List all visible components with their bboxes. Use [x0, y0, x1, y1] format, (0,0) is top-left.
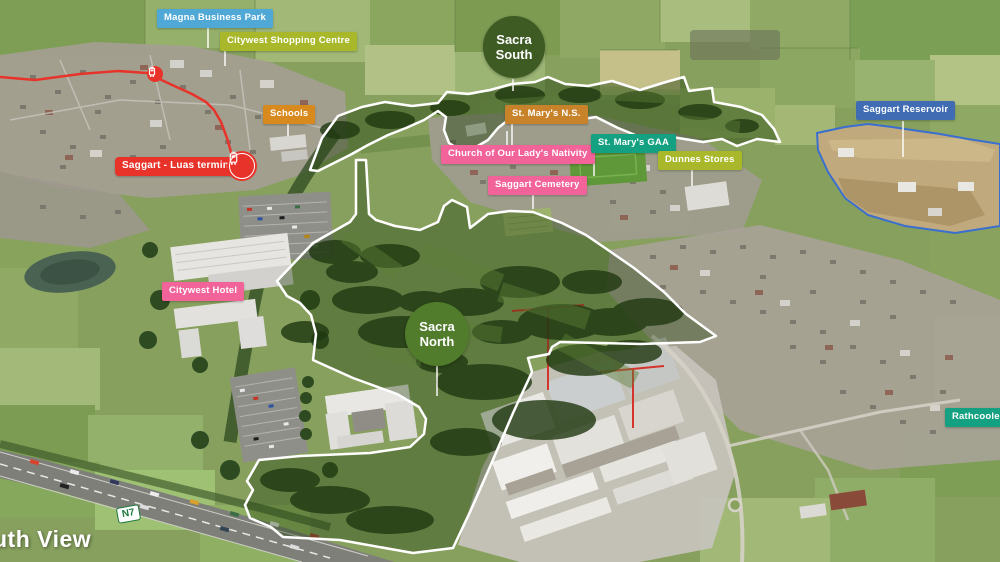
- luas-stop-icon: [147, 66, 163, 82]
- label-rathcoole: Rathcoole: [945, 408, 1000, 427]
- tram-icon: [147, 66, 157, 78]
- label-st-marys-gaa: St. Mary's GAA: [591, 134, 676, 153]
- south-view-caption: uth View: [0, 526, 91, 553]
- aerial-map: Magna Business Park Citywest Shopping Ce…: [0, 0, 1000, 562]
- sacra-south-badge: Sacra South: [483, 16, 545, 78]
- label-church-of-our-ladys-nativity: Church of Our Lady's Nativity: [441, 145, 595, 164]
- aerial-photo: [0, 0, 1000, 562]
- label-saggart-cemetery: Saggart Cemetery: [488, 176, 587, 195]
- label-schools: Schools: [263, 105, 315, 124]
- sacra-north-line2: North: [420, 334, 455, 349]
- label-dunnes-stores: Dunnes Stores: [658, 151, 742, 170]
- label-citywest-hotel: Citywest Hotel: [162, 282, 244, 301]
- tram-icon: [227, 151, 240, 166]
- sacra-north-line1: Sacra: [419, 319, 454, 334]
- label-saggart-luas-terminal: Saggart - Luas terminal: [115, 157, 245, 176]
- sacra-north-badge: Sacra North: [405, 302, 469, 366]
- sacra-south-line1: Sacra: [496, 32, 531, 47]
- icon-ring: [229, 153, 255, 179]
- label-saggart-reservoir: Saggart Reservoir: [856, 101, 955, 120]
- luas-terminal-icon: [227, 151, 257, 181]
- label-st-marys-ns: St. Mary's N.S.: [505, 105, 588, 124]
- label-magna-business-park: Magna Business Park: [157, 9, 273, 28]
- label-citywest-shopping-centre: Citywest Shopping Centre: [220, 32, 357, 51]
- sacra-south-line2: South: [496, 47, 533, 62]
